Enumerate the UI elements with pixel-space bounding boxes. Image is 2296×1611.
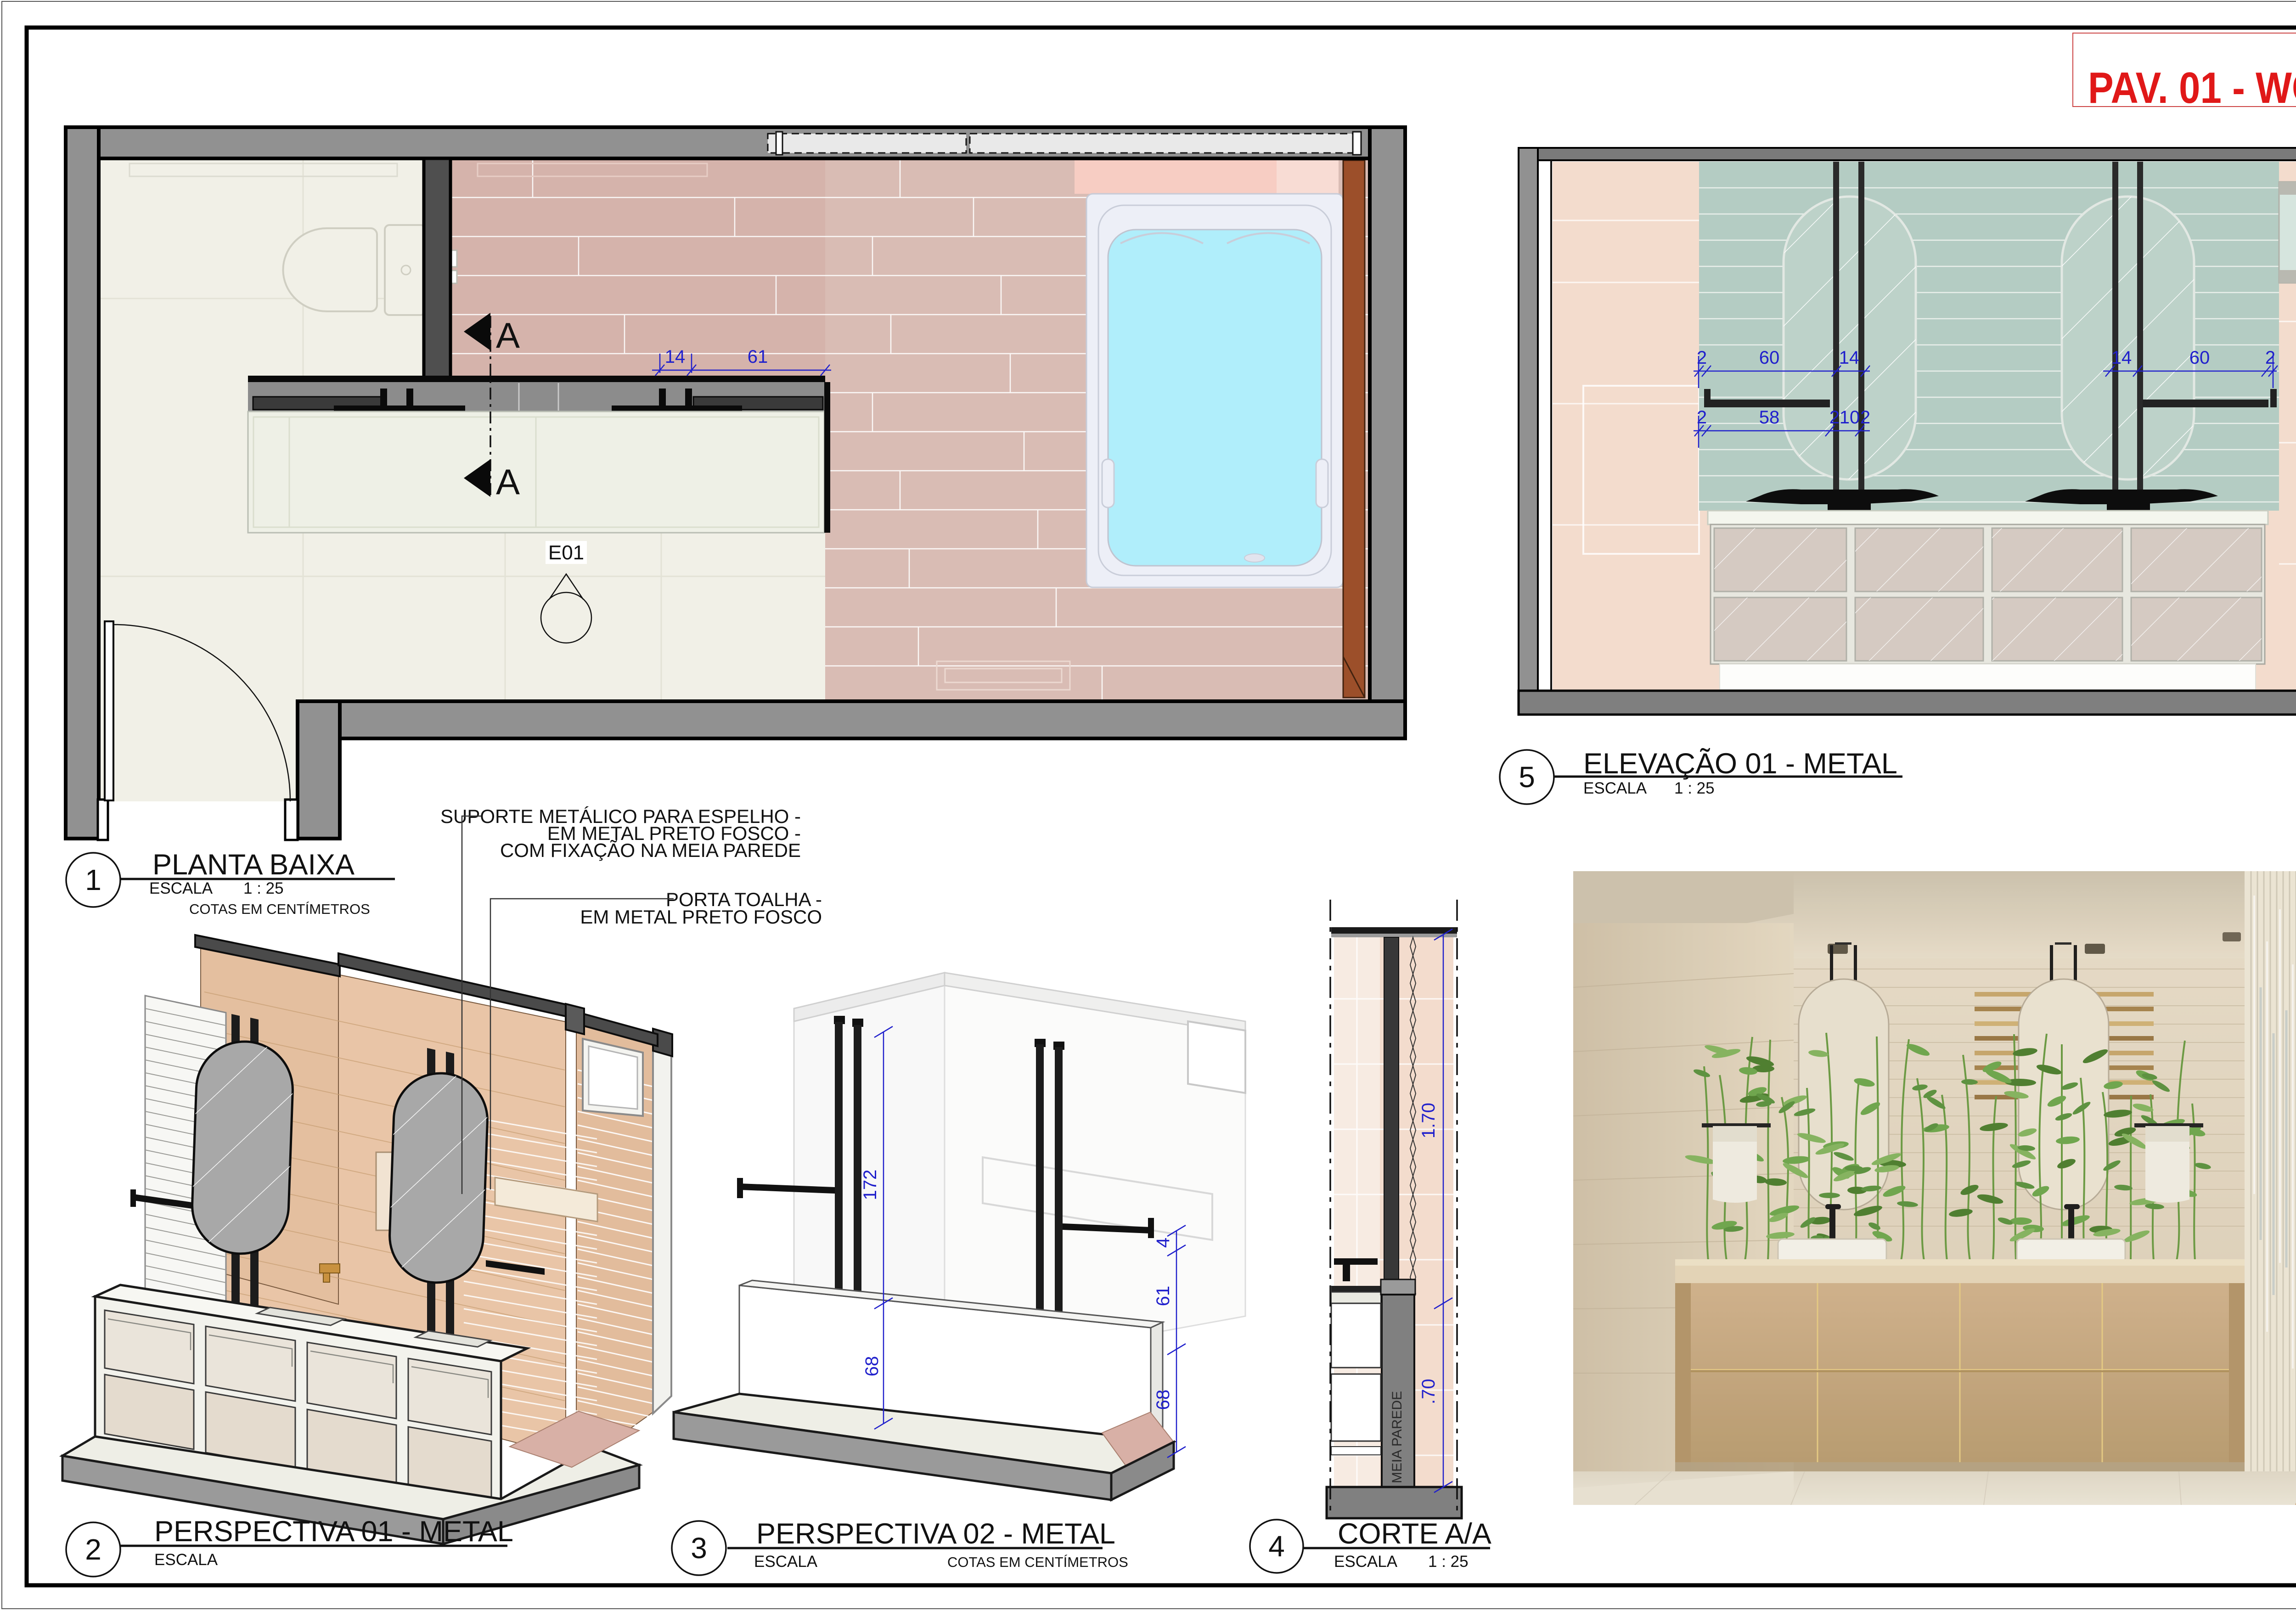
svg-text:COM FIXAÇÃO NA MEIA PAREDE: COM FIXAÇÃO NA MEIA PAREDE [500, 839, 801, 861]
svg-text:61: 61 [748, 347, 768, 367]
svg-text:PERSPECTIVA 02 - METAL: PERSPECTIVA 02 - METAL [756, 1518, 1115, 1550]
svg-text:68: 68 [862, 1356, 882, 1377]
svg-text:COTAS EM CENTÍMETROS: COTAS EM CENTÍMETROS [947, 1554, 1128, 1570]
svg-text:ESCALA: ESCALA [1334, 1553, 1398, 1571]
svg-text:3: 3 [691, 1532, 707, 1565]
svg-text:EM METAL PRETO FOSCO: EM METAL PRETO FOSCO [580, 906, 822, 928]
svg-text:4: 4 [1268, 1530, 1285, 1563]
svg-text:14: 14 [1839, 348, 1860, 368]
svg-text:2: 2 [1860, 407, 1870, 428]
svg-text:14: 14 [665, 347, 686, 367]
svg-text:ELEVAÇÃO 01 - METAL: ELEVAÇÃO 01 - METAL [1583, 748, 1897, 780]
svg-text:1 : 25: 1 : 25 [1674, 779, 1715, 797]
svg-text:ESCALA: ESCALA [1583, 779, 1647, 797]
svg-text:COTAS EM CENTÍMETROS: COTAS EM CENTÍMETROS [189, 901, 370, 917]
svg-text:172: 172 [860, 1170, 880, 1200]
svg-text:4: 4 [1153, 1238, 1173, 1248]
svg-text:58: 58 [1759, 407, 1780, 428]
svg-text:ESCALA: ESCALA [754, 1553, 818, 1571]
svg-text:PLANTA BAIXA: PLANTA BAIXA [152, 849, 355, 881]
svg-text:1: 1 [85, 863, 101, 896]
svg-text:60: 60 [2189, 348, 2210, 368]
svg-text:5: 5 [1519, 760, 1535, 794]
svg-text:CORTE A/A: CORTE A/A [1338, 1518, 1491, 1550]
svg-text:E01: E01 [548, 541, 584, 564]
svg-text:1 : 25: 1 : 25 [1428, 1553, 1469, 1571]
svg-text:.70: .70 [1418, 1379, 1439, 1404]
svg-text:61: 61 [1153, 1286, 1173, 1307]
svg-text:60: 60 [1759, 348, 1780, 368]
svg-text:1 : 25: 1 : 25 [243, 879, 284, 897]
svg-text:1.70: 1.70 [1418, 1103, 1439, 1138]
svg-text:2: 2 [85, 1533, 101, 1566]
svg-text:A: A [496, 315, 520, 355]
svg-text:68: 68 [1153, 1390, 1173, 1410]
svg-text:10: 10 [1840, 407, 1860, 428]
svg-text:A: A [496, 462, 520, 502]
svg-text:2: 2 [2265, 348, 2275, 368]
svg-text:2: 2 [1829, 407, 1840, 428]
svg-text:PAV. 01 - WC MASTER: PAV. 01 - WC MASTER [2088, 63, 2296, 113]
svg-text:PERSPECTIVA 01 - METAL: PERSPECTIVA 01 - METAL [154, 1515, 513, 1548]
svg-text:14: 14 [2111, 348, 2132, 368]
svg-text:MEIA PAREDE: MEIA PAREDE [1390, 1391, 1405, 1483]
svg-text:ESCALA: ESCALA [149, 879, 213, 897]
svg-text:ESCALA: ESCALA [154, 1551, 218, 1569]
